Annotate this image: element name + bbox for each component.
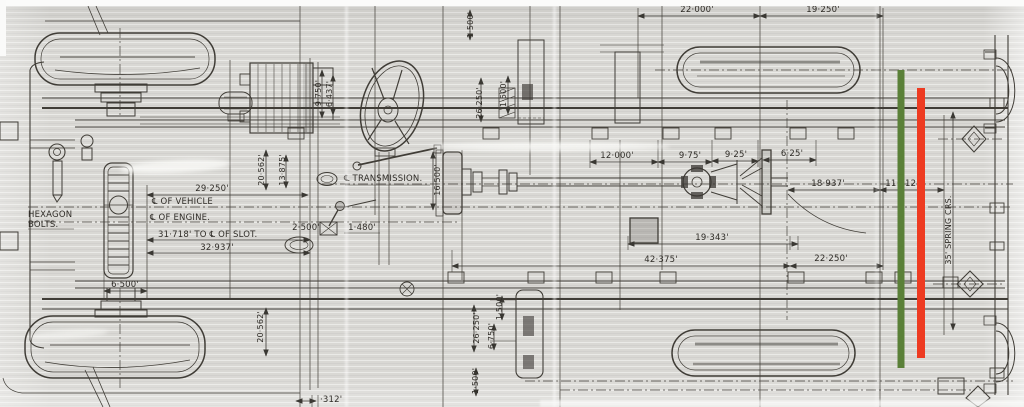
dim-29-250: 29·250' xyxy=(195,184,228,194)
chassis-frame xyxy=(0,21,1015,395)
cross-members xyxy=(104,6,944,407)
front-spring-grid xyxy=(104,163,133,278)
dim-32-937: 32·937' xyxy=(200,243,233,253)
dim-6-25: 6·25' xyxy=(781,149,803,159)
red-annotation-line xyxy=(917,88,925,358)
dim-18-937: 18·937' xyxy=(811,179,844,189)
dim-22-250: 22·250' xyxy=(814,254,847,264)
dim-12-000: 12·000' xyxy=(600,151,633,161)
steering-wheel-icon xyxy=(350,54,433,159)
dim-31-718-to-slot: 31·718' TO ℄ OF SLOT. xyxy=(158,230,257,240)
dim-20-562-bottom: 20·562' xyxy=(256,311,265,343)
dim-312: ·312' xyxy=(320,395,342,405)
dim-9-750: 9·750' xyxy=(314,80,323,106)
dim-6-437: 6·437' xyxy=(325,81,334,107)
dim-1-500-bottom: 1·500' xyxy=(495,294,504,320)
chassis-drawing: HEXAGON BOLTS. 29·250' ℄ OF VEHICLE ℄ OF… xyxy=(0,0,1024,407)
hexagon-bolt-icon xyxy=(49,144,65,160)
centerlines xyxy=(28,28,1013,390)
hexagon-bolts-label: HEXAGON xyxy=(28,210,72,220)
shackle-diamonds xyxy=(938,126,990,407)
dim-6-750: 6·750' xyxy=(487,323,496,349)
gear-levers xyxy=(285,173,376,254)
dim-42-375: 42·375' xyxy=(644,255,677,265)
page-margin-top xyxy=(0,0,1024,6)
dim-1-480: 1·480' xyxy=(348,223,376,233)
dim-22-000: 22·000' xyxy=(680,5,713,15)
dim-26-250-top: 26·250' xyxy=(475,87,484,119)
dim-9-75: 9·75' xyxy=(679,151,701,161)
page-margin-left xyxy=(0,0,6,56)
dim-20-562: 20·562' xyxy=(257,154,266,186)
dim-1-500-top: 1·500' xyxy=(466,12,475,38)
dim-19-250: 19·250' xyxy=(806,5,839,15)
hexagon-bolts-label-2: BOLTS. xyxy=(28,220,58,230)
dim-9-25: 9·25' xyxy=(725,150,747,160)
dim-19-343: 19·343' xyxy=(695,233,728,243)
blueprint-scan: HEXAGON BOLTS. 29·250' ℄ OF VEHICLE ℄ OF… xyxy=(0,0,1024,407)
dim-6-500: 6·500' xyxy=(111,280,139,290)
engine-assembly xyxy=(49,63,333,202)
centerline-of-vehicle-label: ℄ OF VEHICLE xyxy=(151,197,213,207)
centerline-transmission-label: ℄ TRANSMISSION. xyxy=(343,174,422,184)
spring-centers-label: 35' SPRING CRS. xyxy=(944,195,953,264)
centerline-of-engine-label: ℄ OF ENGINE. xyxy=(149,213,210,223)
dim-2-500: 2·500' xyxy=(292,223,320,233)
dim-13-875: 13·875' xyxy=(278,154,287,186)
dim-1-500-bottom2: 1·500' xyxy=(471,368,480,394)
page-margin-bottom xyxy=(540,400,1024,407)
dim-26-250-bottom: 26·250' xyxy=(472,312,481,344)
dim-16-500: 16·500' xyxy=(433,164,442,196)
green-annotation-line xyxy=(898,70,905,368)
clevis-icon xyxy=(81,135,93,147)
dim-1-500-top2: 1·500' xyxy=(499,81,508,107)
